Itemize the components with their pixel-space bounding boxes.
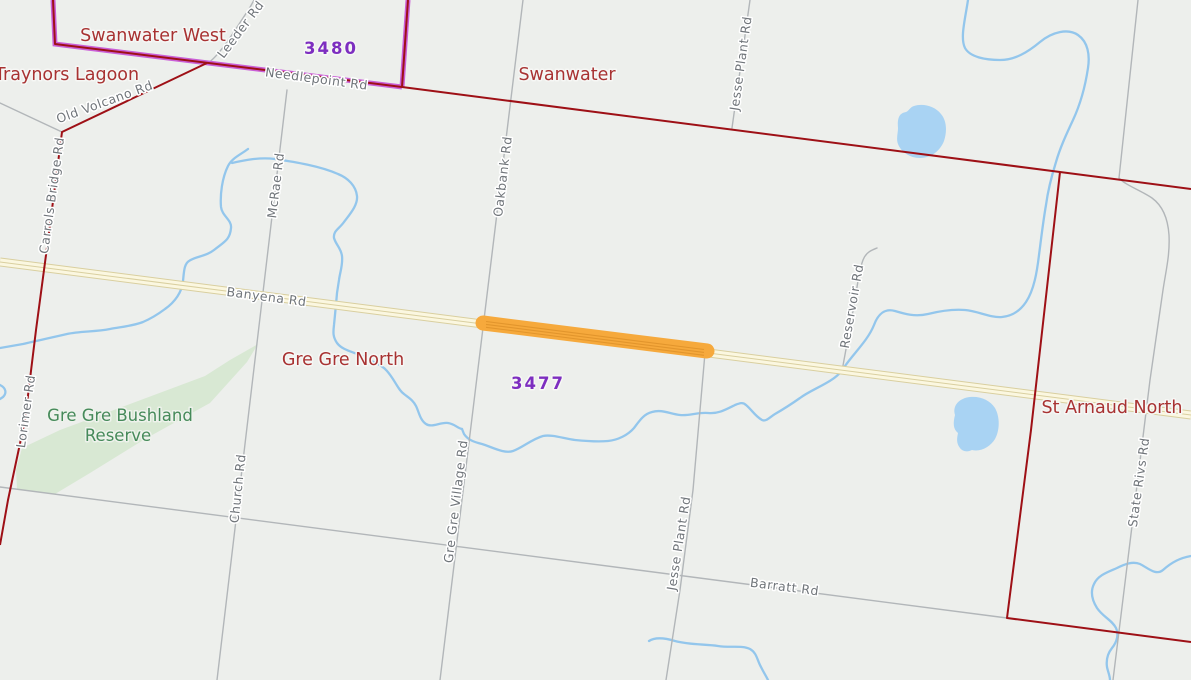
locality-label-swanwater-west: Swanwater West (80, 26, 226, 46)
map-canvas[interactable]: Leeder Rd Needlepoint Rd Old Volcano Rd … (0, 0, 1191, 680)
postcode-label-3480: 3480 (304, 39, 358, 58)
locality-label-st-arnaud-north: St Arnaud North (1042, 398, 1183, 418)
reserve-label-line2: Reserve (85, 426, 151, 445)
reserve-label-line1: Gre Gre Bushland (47, 406, 193, 425)
locality-label-swanwater: Swanwater (518, 65, 616, 85)
locality-label-traynors-lagoon: Traynors Lagoon (0, 65, 139, 85)
postcode-label-3477: 3477 (511, 374, 565, 393)
locality-label-gre-gre-north: Gre Gre North (282, 350, 404, 370)
